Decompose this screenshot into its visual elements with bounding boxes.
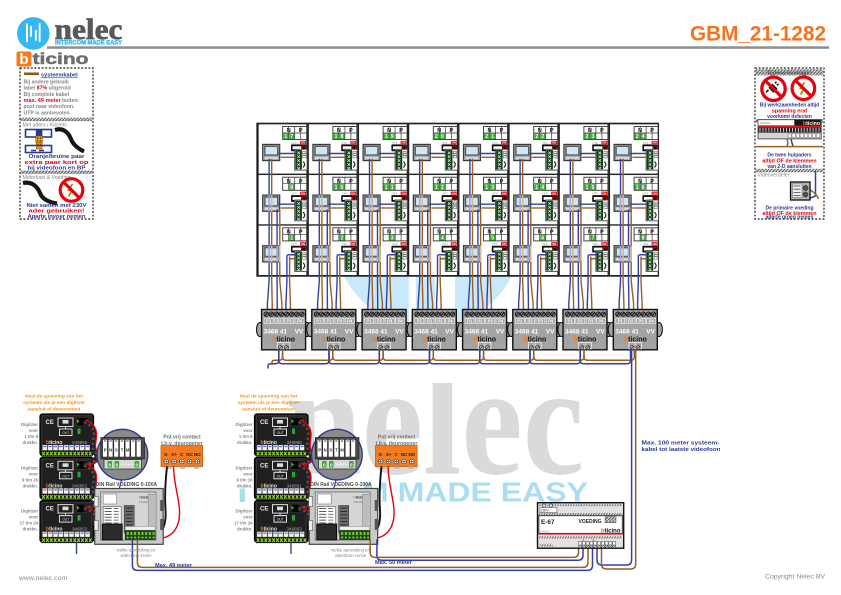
- svg-text:0: 0: [116, 462, 119, 467]
- svg-text:N: N: [324, 448, 327, 453]
- svg-text:OFF: OFF: [492, 141, 498, 145]
- svg-text:ON: ON: [502, 191, 506, 195]
- svg-text:N: N: [437, 179, 441, 185]
- svg-text:bij videofoon en BP: bij videofoon en BP: [28, 165, 87, 171]
- svg-text:Digitizer: Digitizer: [236, 509, 253, 514]
- svg-text:GBM_21-1282: GBM_21-1282: [690, 23, 826, 46]
- svg-text:P: P: [349, 179, 353, 185]
- svg-text:CE: CE: [260, 420, 268, 426]
- svg-text:voor: voor: [29, 471, 39, 476]
- svg-text:P: P: [349, 128, 353, 134]
- svg-text:P4: P4: [649, 318, 655, 323]
- svg-text:Digitizer: Digitizer: [21, 422, 38, 427]
- svg-text:P1: P1: [467, 318, 473, 323]
- svg-text:ON: ON: [652, 141, 656, 145]
- svg-text:P: P: [349, 229, 353, 235]
- svg-text:OFF: OFF: [592, 242, 598, 246]
- svg-text:ON: ON: [301, 191, 305, 195]
- svg-text:P3: P3: [488, 318, 494, 323]
- svg-text:346853: 346853: [72, 527, 88, 532]
- svg-text:ON: ON: [301, 141, 305, 145]
- svg-text:ticino: ticino: [33, 51, 89, 68]
- svg-text:OFF: OFF: [592, 141, 598, 145]
- svg-text:Digitizer: Digitizer: [21, 509, 38, 514]
- svg-text:1: 1: [535, 185, 538, 191]
- svg-text:N: N: [638, 229, 642, 235]
- svg-text:OFF: OFF: [392, 192, 398, 196]
- svg-text:P: P: [650, 229, 654, 235]
- svg-text:Max. 50 meter: Max. 50 meter: [375, 560, 413, 566]
- svg-text:N: N: [488, 128, 492, 134]
- svg-text:ON: ON: [502, 242, 506, 246]
- svg-text:drukkn.: drukkn.: [22, 483, 38, 488]
- svg-text:VV: VV: [546, 329, 555, 336]
- svg-text:Max. 100 meter systeem-: Max. 100 meter systeem-: [642, 441, 720, 447]
- svg-text:2: 2: [485, 134, 488, 140]
- svg-text:2: 2: [541, 134, 544, 140]
- svg-text:P3: P3: [638, 318, 644, 323]
- svg-text:post naar videofoon.: post naar videofoon.: [24, 104, 76, 110]
- svg-text:1 t/m 8: 1 t/m 8: [24, 434, 38, 439]
- svg-text:T: T: [335, 448, 338, 453]
- svg-text:P4: P4: [347, 318, 353, 323]
- svg-text:Pot.vrij contact: Pot.vrij contact: [378, 435, 416, 441]
- svg-text:230V~: 230V~: [541, 509, 550, 513]
- svg-text:N: N: [287, 179, 291, 185]
- svg-text:3468 41: 3468 41: [414, 329, 438, 336]
- svg-text:9 t/m 16: 9 t/m 16: [22, 477, 39, 482]
- svg-text:ON: ON: [502, 141, 506, 145]
- svg-text:N: N: [488, 179, 492, 185]
- svg-text:OFF: OFF: [643, 141, 649, 145]
- svg-text:3468 41: 3468 41: [465, 329, 489, 336]
- svg-text:ON: ON: [351, 141, 355, 145]
- svg-text:P1: P1: [266, 318, 272, 323]
- svg-text:voor: voor: [243, 428, 253, 433]
- svg-text:CE: CE: [260, 463, 268, 469]
- svg-text:Digitizer: Digitizer: [236, 422, 253, 427]
- svg-text:OFF: OFF: [291, 141, 297, 145]
- svg-text:6: 6: [642, 185, 645, 191]
- svg-text:P: P: [449, 229, 453, 235]
- svg-text:ON: ON: [401, 141, 405, 145]
- svg-text:7: 7: [592, 236, 595, 242]
- svg-text:N: N: [387, 179, 391, 185]
- svg-text:Copyright Nelec BV: Copyright Nelec BV: [765, 575, 825, 581]
- svg-text:OFF: OFF: [442, 141, 448, 145]
- svg-text:P2: P2: [377, 318, 383, 323]
- svg-text:NC: NC: [401, 452, 408, 457]
- svg-text:OFF: OFF: [442, 192, 448, 196]
- svg-text:ON: ON: [452, 141, 456, 145]
- svg-text:1: 1: [385, 185, 388, 191]
- svg-text:ON: ON: [351, 191, 355, 195]
- svg-text:VV: VV: [496, 329, 505, 336]
- svg-text:drukkn.: drukkn.: [237, 527, 253, 532]
- svg-text:N: N: [437, 128, 441, 134]
- svg-text:DIN Rail VOEDING 0-100A: DIN Rail VOEDING 0-100A: [310, 482, 372, 488]
- svg-text:0: 0: [330, 462, 333, 467]
- svg-text:P: P: [104, 448, 107, 453]
- svg-text:3468 41: 3468 41: [264, 329, 288, 336]
- svg-text:8: 8: [642, 236, 645, 242]
- svg-text:P1: P1: [367, 318, 373, 323]
- svg-text:P3: P3: [588, 318, 594, 323]
- svg-text:P4: P4: [448, 318, 454, 323]
- svg-text:aansluit of deurcontact: aansluit of deurcontact: [28, 407, 81, 413]
- svg-text:OFF: OFF: [492, 242, 498, 246]
- svg-text:2: 2: [435, 134, 438, 140]
- svg-text:OFF: OFF: [341, 141, 347, 145]
- svg-text:1: 1: [435, 185, 438, 191]
- svg-text:2: 2: [341, 236, 344, 242]
- svg-text:ON: ON: [602, 242, 606, 246]
- svg-text:2: 2: [636, 134, 639, 140]
- svg-text:P: P: [550, 229, 554, 235]
- svg-text:1: 1: [385, 134, 388, 140]
- svg-text:P4: P4: [498, 318, 504, 323]
- svg-text:P: P: [449, 128, 453, 134]
- svg-text:UTP is aanbevolen.: UTP is aanbevolen.: [24, 110, 72, 116]
- svg-text:P1: P1: [567, 318, 573, 323]
- svg-text:Max. 49 meter: Max. 49 meter: [155, 563, 193, 569]
- svg-text:3: 3: [391, 236, 394, 242]
- svg-text:P: P: [500, 128, 504, 134]
- svg-text:OUT: OUT: [277, 474, 284, 478]
- svg-text:9: 9: [391, 134, 394, 140]
- svg-text:NO: NO: [194, 452, 201, 457]
- svg-text:ON: ON: [652, 242, 656, 246]
- svg-text:M: M: [340, 448, 344, 453]
- svg-text:P4: P4: [297, 318, 303, 323]
- svg-text:P: P: [299, 179, 303, 185]
- svg-text:P: P: [399, 179, 403, 185]
- svg-text:ON: ON: [452, 191, 456, 195]
- svg-text:N: N: [337, 229, 341, 235]
- svg-text:346851: 346851: [72, 483, 88, 488]
- svg-text:OUT: OUT: [62, 474, 69, 478]
- svg-text:P: P: [650, 128, 654, 134]
- svg-text:www.nelec.com: www.nelec.com: [18, 576, 68, 582]
- svg-text:NC: NC: [186, 452, 193, 457]
- svg-text:ON: ON: [351, 242, 355, 246]
- svg-text:Pot.vrij contact: Pot.vrij contact: [163, 435, 201, 441]
- svg-text:VV: VV: [345, 329, 354, 336]
- svg-text:drukkn.: drukkn.: [237, 440, 253, 445]
- svg-text:ON: ON: [452, 242, 456, 246]
- svg-text:S+: S+: [386, 452, 392, 457]
- svg-text:OUT: OUT: [277, 518, 284, 522]
- svg-text:ON: ON: [301, 242, 305, 246]
- svg-text:P2: P2: [578, 318, 584, 323]
- svg-text:drukkn.: drukkn.: [22, 440, 38, 445]
- svg-text:label 87% uitgerold: label 87% uitgerold: [24, 86, 71, 92]
- svg-text:P: P: [399, 229, 403, 235]
- svg-text:P: P: [318, 448, 321, 453]
- svg-text:S+: S+: [171, 452, 177, 457]
- svg-text:0: 0: [341, 185, 344, 191]
- svg-text:buiten-: buiten-: [62, 98, 80, 104]
- svg-text:S-: S-: [164, 452, 169, 457]
- svg-text:OFF: OFF: [392, 141, 398, 145]
- svg-text:5: 5: [491, 236, 494, 242]
- svg-text:P2: P2: [628, 318, 634, 323]
- svg-text:346850: 346850: [72, 440, 88, 445]
- svg-text:OFF: OFF: [592, 192, 598, 196]
- svg-text:ON: ON: [401, 242, 405, 246]
- svg-text:ON: ON: [552, 141, 556, 145]
- svg-text:1: 1: [284, 134, 287, 140]
- svg-text:N: N: [538, 229, 542, 235]
- svg-text:7: 7: [290, 134, 293, 140]
- svg-text:N: N: [638, 128, 642, 134]
- svg-text:17 t/m 24: 17 t/m 24: [20, 521, 39, 526]
- svg-text:b: b: [19, 51, 28, 68]
- svg-text:P3: P3: [287, 318, 293, 323]
- svg-text:OFF: OFF: [643, 192, 649, 196]
- svg-text:N: N: [287, 128, 291, 134]
- svg-text:OFF: OFF: [542, 242, 548, 246]
- svg-text:T: T: [121, 448, 124, 453]
- svg-text:P: P: [600, 128, 604, 134]
- svg-text:N: N: [387, 229, 391, 235]
- svg-text:3468 41: 3468 41: [314, 329, 338, 336]
- svg-text:OFF: OFF: [542, 141, 548, 145]
- svg-text:P4: P4: [397, 318, 403, 323]
- svg-text:4: 4: [541, 185, 544, 191]
- svg-text:OFF: OFF: [392, 242, 398, 246]
- svg-text:P: P: [650, 179, 654, 185]
- svg-text:P: P: [399, 128, 403, 134]
- svg-text:voor: voor: [243, 471, 253, 476]
- svg-text:VOEDING: VOEDING: [579, 519, 602, 525]
- svg-text:346853: 346853: [287, 527, 303, 532]
- svg-text:1: 1: [335, 134, 338, 140]
- svg-text:346000: 346000: [760, 121, 770, 125]
- svg-text:9 t/m 16: 9 t/m 16: [236, 477, 253, 482]
- svg-text:VV: VV: [445, 329, 454, 336]
- svg-text:CE: CE: [46, 420, 54, 426]
- svg-text:Digitizer: Digitizer: [236, 465, 253, 470]
- svg-text:1: 1: [491, 134, 494, 140]
- svg-text:Haal de spanning van het: Haal de spanning van het: [25, 394, 83, 400]
- svg-text:INTERCOM MADE EASY: INTERCOM MADE EASY: [55, 40, 123, 47]
- svg-text:1 t/m 8: 1 t/m 8: [239, 434, 253, 439]
- svg-text:P1: P1: [417, 318, 423, 323]
- svg-text:max. 49 meter: max. 49 meter: [24, 98, 62, 104]
- svg-text:1: 1: [391, 185, 394, 191]
- svg-text:OUT: OUT: [277, 431, 284, 435]
- svg-text:P: P: [600, 179, 604, 185]
- svg-text:P2: P2: [528, 318, 534, 323]
- svg-text:N: N: [109, 448, 112, 453]
- svg-text:Bij andere gebruik: Bij andere gebruik: [24, 80, 69, 86]
- svg-text:ON: ON: [552, 242, 556, 246]
- svg-text:Videoverdeler:: Videoverdeler:: [758, 173, 791, 179]
- svg-text:P: P: [550, 179, 554, 185]
- svg-text:9: 9: [290, 185, 293, 191]
- svg-text:OFF: OFF: [291, 192, 297, 196]
- svg-text:ON: ON: [652, 191, 656, 195]
- svg-text:P3: P3: [538, 318, 544, 323]
- svg-text:OFF: OFF: [492, 192, 498, 196]
- svg-text:P: P: [500, 179, 504, 185]
- svg-text:3468 41: 3468 41: [515, 329, 539, 336]
- svg-text:aansluit of deurcontact: aansluit of deurcontact: [242, 407, 295, 413]
- svg-text:videofoon versie: videofoon versie: [120, 553, 152, 558]
- svg-text:voor: voor: [243, 515, 253, 520]
- svg-text:4: 4: [441, 236, 444, 242]
- svg-text:N: N: [437, 229, 441, 235]
- svg-text:N: N: [387, 128, 391, 134]
- svg-text:P1: P1: [316, 318, 322, 323]
- svg-text:1: 1: [290, 236, 293, 242]
- svg-text:0: 0: [441, 134, 444, 140]
- svg-text:P1: P1: [517, 318, 523, 323]
- svg-text:346850: 346850: [287, 440, 303, 445]
- svg-text:systeem als je een digitizer: systeem als je een digitizer: [23, 400, 85, 406]
- svg-text:DIN Rail VOEDING 0-100A: DIN Rail VOEDING 0-100A: [96, 482, 158, 488]
- svg-text:OFF: OFF: [643, 242, 649, 246]
- svg-text:3468 41: 3468 41: [565, 329, 589, 336]
- svg-text:OFF: OFF: [341, 242, 347, 246]
- svg-text:Digitizer: Digitizer: [21, 465, 38, 470]
- svg-text:aparte groep nemen: aparte groep nemen: [766, 215, 814, 221]
- svg-text:P3: P3: [437, 318, 443, 323]
- svg-text:P2: P2: [477, 318, 483, 323]
- svg-text:P: P: [600, 229, 604, 235]
- svg-text:P: P: [449, 179, 453, 185]
- svg-text:VV: VV: [395, 329, 404, 336]
- svg-text:P: P: [299, 229, 303, 235]
- svg-text:E-67: E-67: [541, 519, 555, 526]
- svg-text:0: 0: [323, 462, 326, 467]
- svg-text:CE: CE: [46, 507, 54, 513]
- svg-text:N: N: [337, 179, 341, 185]
- svg-text:N: N: [488, 229, 492, 235]
- svg-text:2: 2: [441, 185, 444, 191]
- svg-text:346000: 346000: [139, 500, 149, 504]
- svg-text:P: P: [500, 229, 504, 235]
- svg-text:4: 4: [642, 134, 645, 140]
- svg-text:2: 2: [586, 134, 589, 140]
- svg-text:OFF: OFF: [442, 242, 448, 246]
- svg-text:1: 1: [586, 185, 589, 191]
- svg-text:2: 2: [535, 134, 538, 140]
- svg-text:ON: ON: [552, 191, 556, 195]
- svg-text:drukkn.: drukkn.: [237, 483, 253, 488]
- svg-text:P3: P3: [337, 318, 343, 323]
- svg-text:systeem als je een digitizer: systeem als je een digitizer: [238, 400, 300, 406]
- svg-text:N: N: [588, 179, 592, 185]
- svg-text:P: P: [299, 128, 303, 134]
- svg-text:kabel tot laatste videofoon: kabel tot laatste videofoon: [642, 447, 721, 453]
- svg-text:videofoon versie: videofoon versie: [335, 553, 367, 558]
- svg-text:Aparte invoer nemen: Aparte invoer nemen: [28, 214, 86, 220]
- svg-text:N: N: [638, 179, 642, 185]
- svg-text:1: 1: [485, 185, 488, 191]
- svg-text:OUT: OUT: [62, 431, 69, 435]
- svg-text:VV: VV: [295, 329, 304, 336]
- svg-text:OFF: OFF: [291, 242, 297, 246]
- svg-text:1: 1: [636, 185, 639, 191]
- svg-text:N: N: [538, 128, 542, 134]
- svg-text:CE: CE: [46, 463, 54, 469]
- svg-text:drukkn.: drukkn.: [22, 527, 38, 532]
- svg-text:welke aansluiting en: welke aansluiting en: [117, 548, 156, 553]
- svg-text:3468 41: 3468 41: [364, 329, 388, 336]
- svg-text:8: 8: [341, 134, 344, 140]
- svg-text:VV: VV: [596, 329, 605, 336]
- svg-text:N: N: [538, 179, 542, 185]
- svg-text:S: S: [329, 448, 332, 453]
- svg-text:3468 41: 3468 41: [615, 329, 639, 336]
- svg-text:welke aansluiting en: welke aansluiting en: [331, 548, 370, 553]
- svg-text:systeemkabel: systeemkabel: [41, 73, 78, 79]
- svg-text:6: 6: [541, 236, 544, 242]
- svg-text:ON: ON: [602, 191, 606, 195]
- svg-text:P: P: [550, 128, 554, 134]
- svg-text:N: N: [588, 128, 592, 134]
- svg-text:P4: P4: [598, 318, 604, 323]
- svg-text:P3: P3: [387, 318, 393, 323]
- svg-text:Bij complete kabel: Bij complete kabel: [24, 92, 70, 98]
- svg-text:346851: 346851: [287, 483, 303, 488]
- svg-text:NO: NO: [408, 452, 415, 457]
- svg-text:P4: P4: [548, 318, 554, 323]
- svg-text:OUT: OUT: [62, 518, 69, 522]
- svg-text:voor: voor: [29, 515, 39, 520]
- svg-text:S-: S-: [379, 452, 384, 457]
- svg-text:Haal de spanning van het: Haal de spanning van het: [240, 394, 298, 400]
- svg-text:P1: P1: [618, 318, 624, 323]
- svg-text:ON: ON: [602, 141, 606, 145]
- svg-text:N: N: [588, 229, 592, 235]
- svg-text:N: N: [337, 128, 341, 134]
- svg-text:17 t/m 24: 17 t/m 24: [234, 521, 253, 526]
- svg-text:0: 0: [350, 462, 353, 467]
- svg-text:P2: P2: [327, 318, 333, 323]
- svg-text:P2: P2: [276, 318, 282, 323]
- svg-text:3: 3: [592, 134, 595, 140]
- svg-text:CE: CE: [260, 507, 268, 513]
- svg-text:P2: P2: [427, 318, 433, 323]
- svg-text:VV: VV: [646, 329, 655, 336]
- svg-text:ON: ON: [401, 191, 405, 195]
- svg-text:5: 5: [592, 185, 595, 191]
- svg-text:N: N: [287, 229, 291, 235]
- svg-text:1: 1: [335, 185, 338, 191]
- svg-text:OFF: OFF: [341, 192, 347, 196]
- svg-text:346000: 346000: [353, 500, 363, 504]
- svg-text:S: S: [115, 448, 118, 453]
- svg-text:0: 0: [136, 462, 139, 467]
- svg-text:M: M: [126, 448, 130, 453]
- svg-text:OFF: OFF: [542, 192, 548, 196]
- svg-text:0: 0: [109, 462, 112, 467]
- svg-text:3: 3: [491, 185, 494, 191]
- svg-text:voor: voor: [29, 428, 39, 433]
